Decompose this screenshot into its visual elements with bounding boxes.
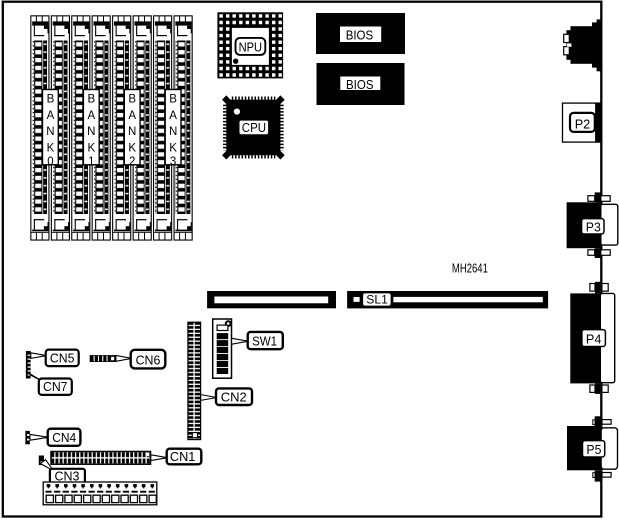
svg-text:A: A [169, 110, 177, 122]
svg-text:CN1: CN1 [170, 450, 196, 464]
svg-text:CN5: CN5 [50, 351, 75, 365]
svg-text:BIOS: BIOS [346, 27, 374, 42]
svg-text:2: 2 [129, 156, 135, 168]
svg-text:N: N [128, 126, 136, 138]
svg-text:3: 3 [170, 156, 176, 168]
svg-text:K: K [169, 142, 177, 154]
svg-text:A: A [128, 110, 136, 122]
svg-text:BIOS: BIOS [346, 77, 374, 92]
svg-text:P3: P3 [586, 221, 601, 235]
svg-text:N: N [87, 126, 95, 138]
svg-text:A: A [47, 110, 55, 122]
svg-text:B: B [169, 94, 177, 106]
svg-text:N: N [169, 126, 177, 138]
svg-text:NPU: NPU [239, 41, 263, 55]
svg-text:P2: P2 [575, 116, 591, 131]
svg-text:SL1: SL1 [366, 293, 388, 307]
svg-text:P5: P5 [586, 443, 601, 457]
svg-text:CPU: CPU [242, 121, 266, 135]
svg-text:A: A [87, 110, 95, 122]
svg-text:K: K [47, 142, 55, 154]
svg-text:B: B [128, 94, 136, 106]
svg-text:CN2: CN2 [221, 390, 247, 404]
svg-text:B: B [47, 94, 55, 106]
svg-text:1: 1 [88, 156, 94, 168]
svg-text:0: 0 [47, 156, 53, 168]
svg-text:N: N [46, 126, 54, 138]
svg-text:SW1: SW1 [252, 334, 277, 348]
svg-text:B: B [87, 94, 95, 106]
svg-text:CN7: CN7 [43, 380, 68, 394]
svg-text:P4: P4 [586, 332, 602, 346]
svg-text:K: K [128, 142, 136, 154]
svg-text:CN6: CN6 [136, 353, 161, 367]
svg-text:MH2641: MH2641 [452, 261, 488, 275]
svg-text:CN4: CN4 [52, 431, 76, 445]
svg-text:K: K [87, 142, 95, 154]
